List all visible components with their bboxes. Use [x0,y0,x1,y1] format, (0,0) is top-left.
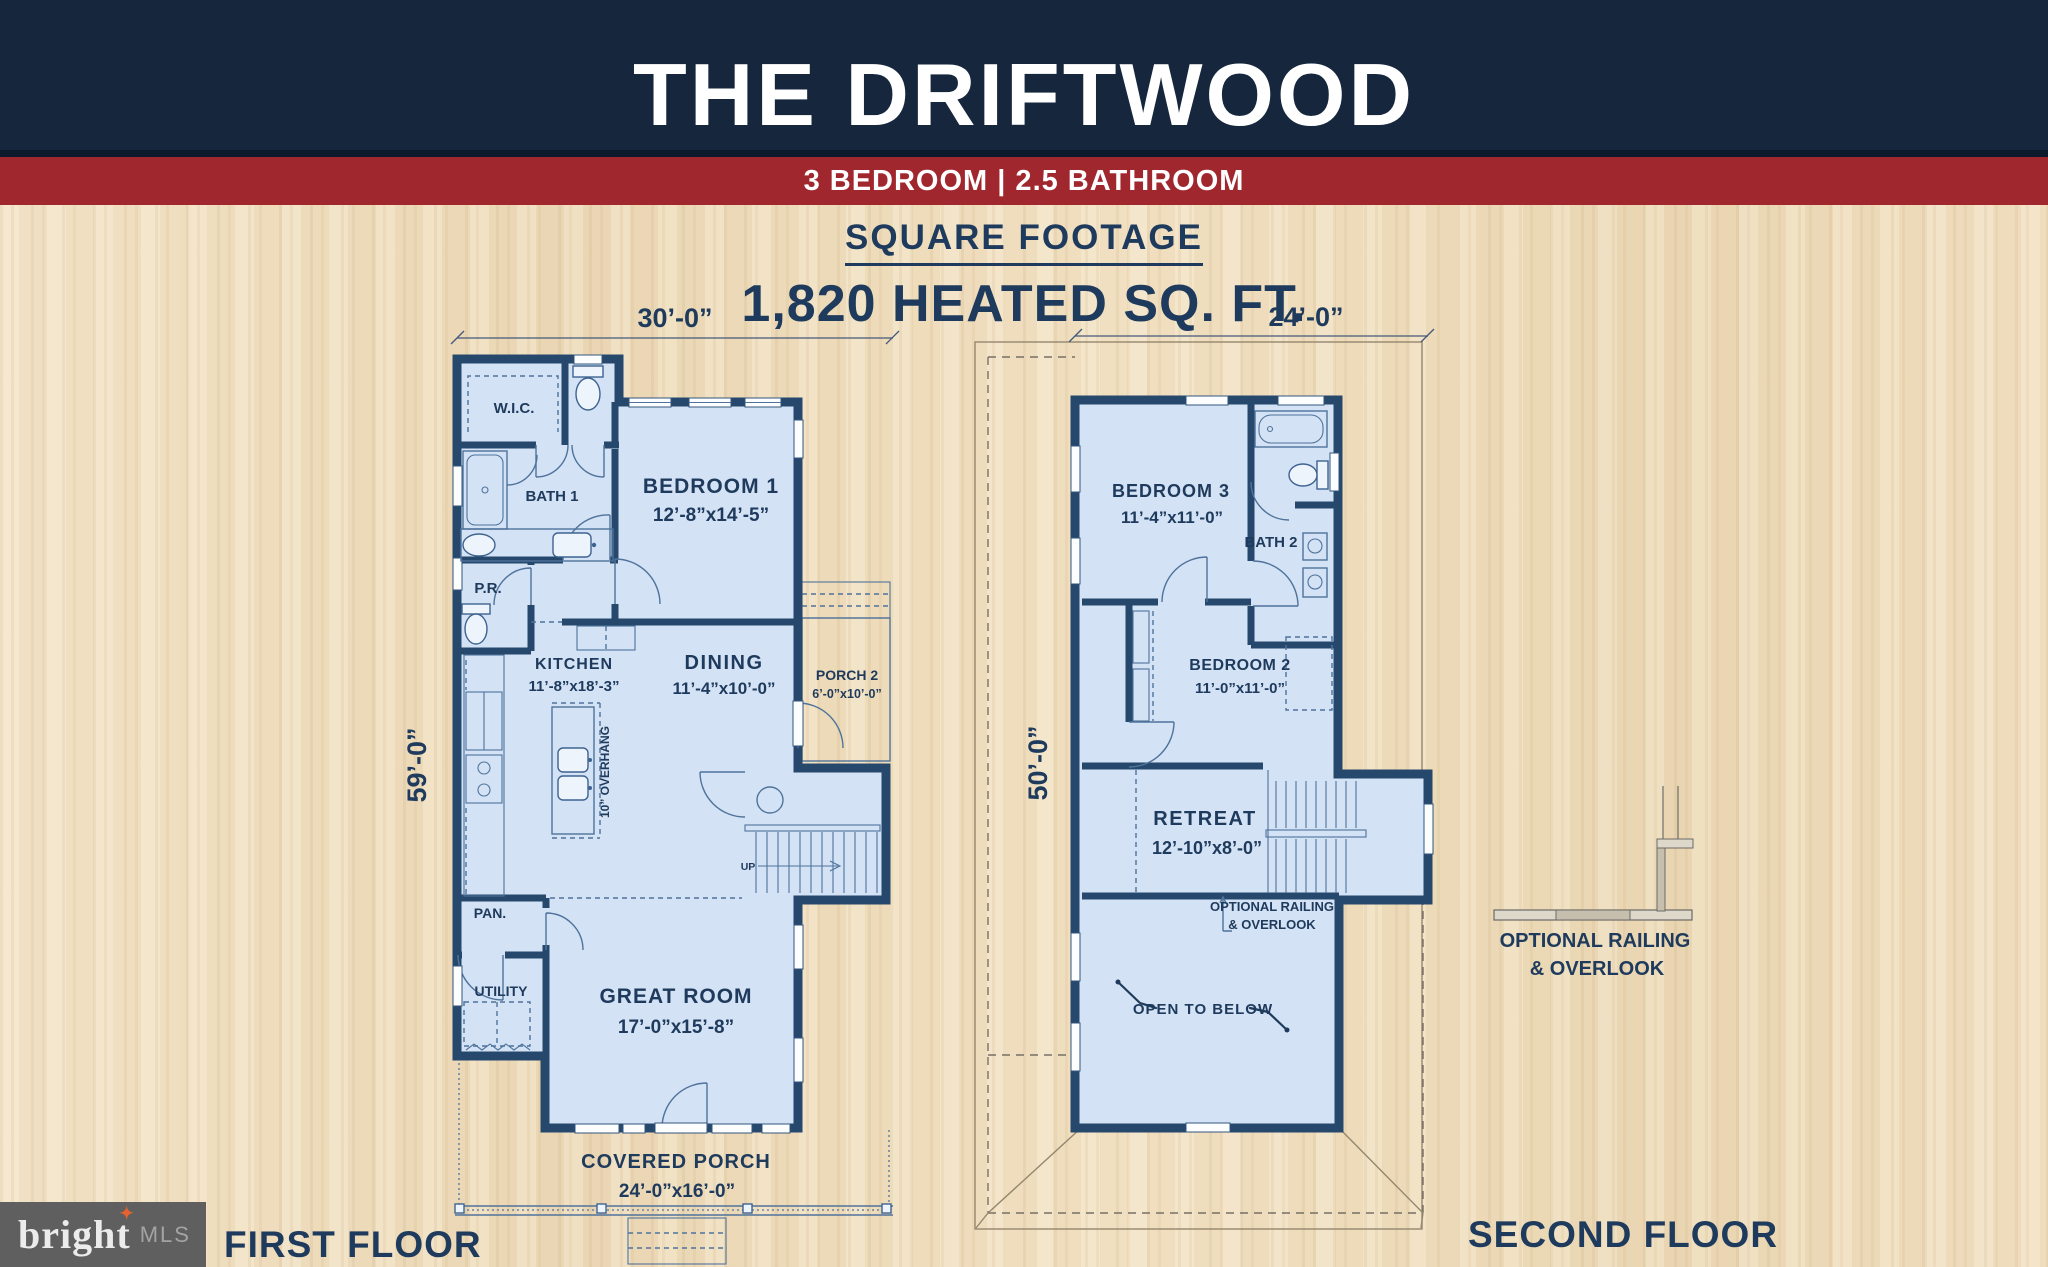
label-covered-porch: COVERED PORCH [581,1151,771,1173]
logo-suffix: MLS [140,1222,191,1248]
railing-detail-line1: OPTIONAL RAILING [1500,930,1691,952]
label-railing-note-2: & OVERLOOK [1228,917,1316,932]
first-floor-label: FIRST FLOOR [224,1224,482,1266]
dim-width-ff: 30’-0” [637,303,712,333]
label-kitchen-dims: 11’-8”x18’-3” [529,678,620,695]
dim-height-sf: 50’-0” [1023,725,1053,800]
label-kitchen: KITCHEN [535,656,613,673]
label-bedroom1-dims: 12’-8”x14’-5” [653,505,769,526]
label-bedroom2: BEDROOM 2 [1189,657,1290,674]
porch-steps [628,1218,726,1264]
railing-detail: OPTIONAL RAILING & OVERLOOK [1494,786,1693,980]
label-pr: P.R. [474,580,501,597]
bright-mls-logo: bright✦ MLS [0,1202,206,1267]
first-floor-plan: 30’-0” 59’-0” W.I.C. BATH 1 P.R. BEDROOM… [402,303,899,1264]
label-porch2: PORCH 2 [816,667,878,683]
label-bedroom2-dims: 11’-0”x11’-0” [1195,680,1285,697]
label-great-room: GREAT ROOM [599,985,752,1008]
label-bedroom3-dims: 11’-4”x11’-0” [1121,508,1223,527]
label-up: UP [741,861,756,873]
label-railing-note-1: OPTIONAL RAILING [1210,899,1334,914]
logo-star-icon: ✦ [119,1205,134,1222]
logo-wordmark: bright✦ [18,1215,131,1255]
label-great-room-dims: 17’-0”x15’-8” [618,1017,734,1038]
label-pan: PAN. [474,905,506,921]
label-utility: UTILITY [475,983,529,999]
label-dining-dims: 11’-4”x10’-0” [672,679,775,698]
floor-plan-drawing: 30’-0” 59’-0” W.I.C. BATH 1 P.R. BEDROOM… [0,0,2048,1267]
second-floor-label: SECOND FLOOR [1468,1214,1778,1256]
label-dining: DINING [685,652,764,674]
label-overhang: 10” OVERHANG [598,726,612,818]
label-bedroom3: BEDROOM 3 [1112,481,1230,501]
label-bath1: BATH 1 [525,488,578,505]
label-wic: W.I.C. [494,400,535,417]
railing-detail-line2: & OVERLOOK [1530,958,1665,980]
label-retreat-dims: 12’-10”x8’-0” [1152,838,1262,858]
label-bedroom1: BEDROOM 1 [643,475,779,498]
dim-width-sf: 24’-0” [1268,302,1343,332]
toilet-hall-bath [573,366,603,410]
label-retreat: RETREAT [1153,808,1256,830]
dim-height-ff: 59’-0” [402,727,432,802]
label-porch2-dims: 6’-0”x10’-0” [812,687,881,701]
label-bath2: BATH 2 [1244,534,1297,551]
label-open-below: OPEN TO BELOW [1133,1001,1273,1018]
second-floor-plan: 24’-0” 50’-0” BEDROOM 3 11’-4”x11’-0” BA… [975,302,1434,1229]
flyer-page: THE DRIFTWOOD 3 BEDROOM | 2.5 BATHROOM S… [0,0,2048,1267]
label-covered-porch-dims: 24’-0”x16’-0” [619,1181,735,1202]
